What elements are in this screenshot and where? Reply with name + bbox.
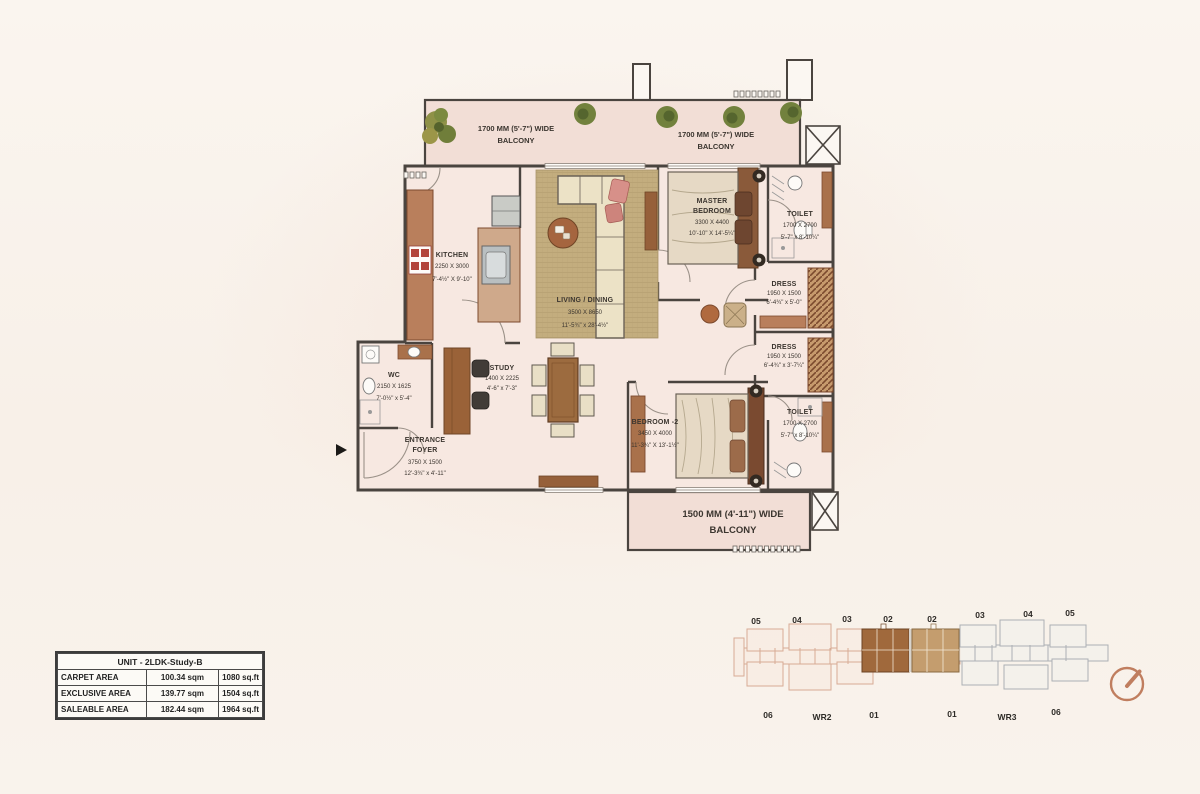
key-plan-highlight-unit-primary bbox=[862, 624, 909, 672]
svg-text:1700 X 2700: 1700 X 2700 bbox=[783, 223, 818, 229]
svg-text:BALCONY: BALCONY bbox=[710, 525, 758, 536]
svg-text:7'-4½" X 9'-10": 7'-4½" X 9'-10" bbox=[432, 276, 472, 283]
svg-text:5'-7" x 8'-10¼": 5'-7" x 8'-10¼" bbox=[781, 235, 820, 241]
area-row-sqm: 100.34 sqm bbox=[146, 670, 218, 686]
svg-text:2250 X 3000: 2250 X 3000 bbox=[435, 264, 470, 270]
north-compass-icon bbox=[1111, 668, 1143, 700]
svg-text:TOILET: TOILET bbox=[787, 409, 813, 416]
table-row: SALEABLE AREA 182.44 sqm 1964 sq.ft bbox=[58, 702, 263, 718]
svg-text:DRESS: DRESS bbox=[771, 344, 796, 351]
svg-text:05: 05 bbox=[1065, 608, 1075, 618]
svg-text:1400 X 2225: 1400 X 2225 bbox=[485, 376, 520, 382]
svg-text:06: 06 bbox=[1051, 707, 1061, 717]
balcony-bottom-fill bbox=[628, 492, 810, 550]
label-kitchen: KITCHEN 2250 X 3000 7'-4½" X 9'-10" bbox=[432, 252, 472, 283]
unit-area-table: UNIT - 2LDK-Study-B CARPET AREA 100.34 s… bbox=[55, 651, 265, 720]
svg-text:DRESS: DRESS bbox=[771, 281, 796, 288]
svg-text:02: 02 bbox=[927, 614, 937, 624]
entrance-arrow bbox=[336, 444, 347, 456]
svg-text:01: 01 bbox=[947, 709, 957, 719]
area-row-sqft: 1504 sq.ft bbox=[219, 686, 263, 702]
svg-text:2150 X 1625: 2150 X 1625 bbox=[377, 384, 412, 390]
svg-text:04: 04 bbox=[792, 615, 802, 625]
svg-text:05: 05 bbox=[751, 616, 761, 626]
svg-text:5'-7" x 8'-10¼": 5'-7" x 8'-10¼" bbox=[781, 433, 820, 439]
table-row: CARPET AREA 100.34 sqm 1080 sq.ft bbox=[58, 670, 263, 686]
svg-text:6'-4¾" x 3'-7¼": 6'-4¾" x 3'-7¼" bbox=[764, 363, 804, 369]
svg-text:3300 X 4400: 3300 X 4400 bbox=[695, 220, 730, 226]
svg-text:11'-3¾" X 13'-1½": 11'-3¾" X 13'-1½" bbox=[631, 442, 678, 449]
svg-text:1700 MM (5'-7") WIDE: 1700 MM (5'-7") WIDE bbox=[478, 124, 554, 133]
svg-text:04: 04 bbox=[1023, 609, 1033, 619]
unit-title: UNIT - 2LDK-Study-B bbox=[58, 654, 263, 670]
floor-plan: 1700 MM (5'-7") WIDE BALCONY 1700 MM (5'… bbox=[336, 60, 840, 552]
svg-text:WR2: WR2 bbox=[813, 712, 832, 722]
svg-text:WC: WC bbox=[388, 372, 400, 379]
svg-text:WR3: WR3 bbox=[998, 712, 1017, 722]
svg-text:BALCONY: BALCONY bbox=[497, 136, 534, 145]
svg-text:ENTRANCE: ENTRANCE bbox=[405, 437, 446, 444]
svg-text:BEDROOM -2: BEDROOM -2 bbox=[632, 419, 679, 426]
svg-text:TOILET: TOILET bbox=[787, 211, 813, 218]
svg-text:6'-4¾" x 5'-0": 6'-4¾" x 5'-0" bbox=[766, 300, 801, 306]
svg-text:10'-10" X 14'-5¼": 10'-10" X 14'-5¼" bbox=[689, 231, 735, 237]
svg-text:11'-5¾" x 28'-4½": 11'-5¾" x 28'-4½" bbox=[562, 322, 608, 329]
duct-shaft-top bbox=[806, 126, 840, 164]
svg-text:4'-6" x 7'-3": 4'-6" x 7'-3" bbox=[487, 386, 517, 392]
area-row-sqft: 1080 sq.ft bbox=[219, 670, 263, 686]
table-row: EXCLUSIVE AREA 139.77 sqm 1504 sq.ft bbox=[58, 686, 263, 702]
svg-text:KITCHEN: KITCHEN bbox=[436, 252, 469, 259]
master-bed bbox=[668, 168, 766, 268]
svg-text:12'-3¾" x 4'-11": 12'-3¾" x 4'-11" bbox=[404, 471, 445, 477]
svg-text:3500 X 8650: 3500 X 8650 bbox=[568, 310, 603, 316]
key-plan-right-wing bbox=[956, 620, 1108, 689]
svg-text:7'-0½" x 5'-4": 7'-0½" x 5'-4" bbox=[376, 395, 411, 402]
svg-text:1950 X 1500: 1950 X 1500 bbox=[767, 354, 802, 360]
label-bedroom-2: BEDROOM -2 3450 X 4000 11'-3¾" X 13'-1½" bbox=[631, 419, 678, 449]
svg-text:STUDY: STUDY bbox=[490, 365, 515, 372]
svg-text:MASTER: MASTER bbox=[697, 198, 728, 205]
area-row-sqm: 182.44 sqm bbox=[146, 702, 218, 718]
svg-text:BEDROOM: BEDROOM bbox=[693, 208, 731, 215]
svg-text:03: 03 bbox=[975, 610, 985, 620]
structural-columns bbox=[633, 60, 812, 100]
key-plan-highlight-unit-secondary bbox=[912, 624, 959, 672]
duct-shaft-bottom bbox=[812, 492, 838, 530]
svg-text:06: 06 bbox=[763, 710, 773, 720]
svg-text:BALCONY: BALCONY bbox=[697, 142, 734, 151]
svg-text:3450 X 4000: 3450 X 4000 bbox=[638, 431, 673, 437]
area-row-label: SALEABLE AREA bbox=[58, 702, 147, 718]
svg-text:LIVING / DINING: LIVING / DINING bbox=[557, 297, 614, 304]
key-plan: 05 04 03 02 02 03 04 05 06 WR2 01 01 WR3… bbox=[734, 608, 1108, 722]
svg-text:3750 X 1500: 3750 X 1500 bbox=[408, 460, 443, 466]
svg-text:01: 01 bbox=[869, 710, 879, 720]
area-row-sqft: 1964 sq.ft bbox=[219, 702, 263, 718]
svg-text:1700 MM (5'-7") WIDE: 1700 MM (5'-7") WIDE bbox=[678, 130, 754, 139]
svg-text:FOYER: FOYER bbox=[412, 447, 437, 454]
area-row-sqm: 139.77 sqm bbox=[146, 686, 218, 702]
svg-text:03: 03 bbox=[842, 614, 852, 624]
label-dress-1: DRESS 1950 X 1500 6'-4¾" x 5'-0" bbox=[766, 281, 801, 306]
svg-text:1500 MM (4'-11") WIDE: 1500 MM (4'-11") WIDE bbox=[682, 509, 783, 520]
svg-text:02: 02 bbox=[883, 614, 893, 624]
svg-text:1700 X 2700: 1700 X 2700 bbox=[783, 421, 818, 427]
svg-text:1950 X 1500: 1950 X 1500 bbox=[767, 291, 802, 297]
area-row-label: EXCLUSIVE AREA bbox=[58, 686, 147, 702]
area-row-label: CARPET AREA bbox=[58, 670, 147, 686]
